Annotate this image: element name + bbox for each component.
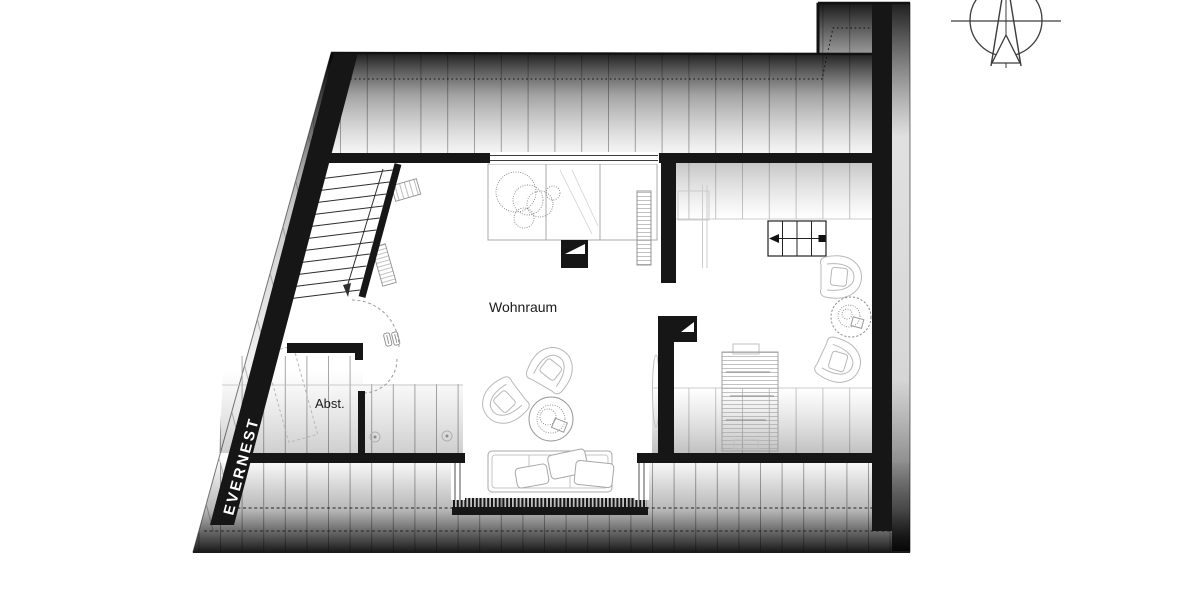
desk-table: [722, 344, 778, 451]
armchair: [821, 256, 862, 299]
chimney-symbol: [658, 316, 697, 342]
floor-plan-page: Wohnraum Abst. EVERNEST: [0, 0, 1200, 600]
window: [490, 152, 658, 164]
chimney-symbol: [561, 240, 588, 268]
window: [635, 463, 649, 500]
room-label-living-room: Wohnraum: [489, 299, 557, 315]
sideboard: [488, 164, 657, 240]
floor-plan-drawing: Wohnraum Abst. EVERNEST: [0, 0, 1200, 600]
room-label-storage: Abst.: [315, 396, 345, 411]
ladder-shelf: [637, 191, 651, 265]
sofa: [488, 448, 614, 492]
window: [451, 463, 465, 500]
small-stair: [768, 221, 826, 256]
